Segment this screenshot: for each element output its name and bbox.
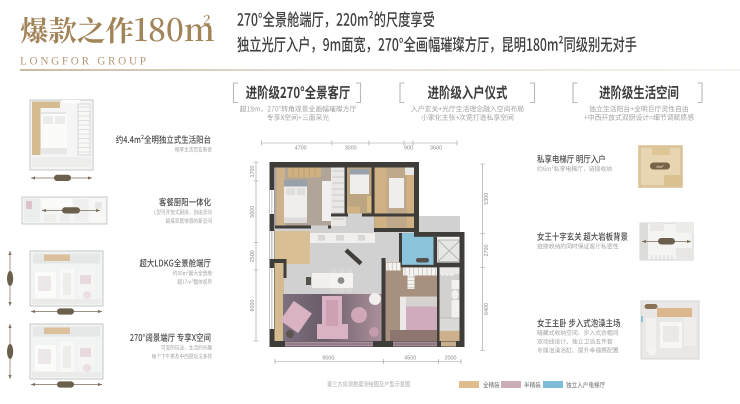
- svg-text:6400: 6400: [484, 303, 490, 315]
- svg-text:4500: 4500: [404, 355, 416, 361]
- svg-text:6m²: 6m²: [657, 164, 665, 169]
- svg-text:2700: 2700: [484, 245, 490, 257]
- svg-text:2500: 2500: [250, 250, 256, 262]
- svg-text:5300: 5300: [484, 193, 490, 205]
- svg-text:LONGFOR GROUP: LONGFOR GROUP: [20, 56, 149, 68]
- svg-text:9000: 9000: [322, 355, 334, 361]
- svg-text:1700: 1700: [250, 166, 256, 178]
- svg-text:6000: 6000: [250, 300, 256, 312]
- svg-text:4700: 4700: [295, 146, 307, 152]
- svg-text:5600: 5600: [250, 206, 256, 218]
- svg-text:3600: 3600: [430, 146, 442, 152]
- svg-text:2000: 2000: [445, 355, 457, 361]
- svg-text:900: 900: [404, 146, 413, 152]
- svg-text:3000: 3000: [345, 146, 357, 152]
